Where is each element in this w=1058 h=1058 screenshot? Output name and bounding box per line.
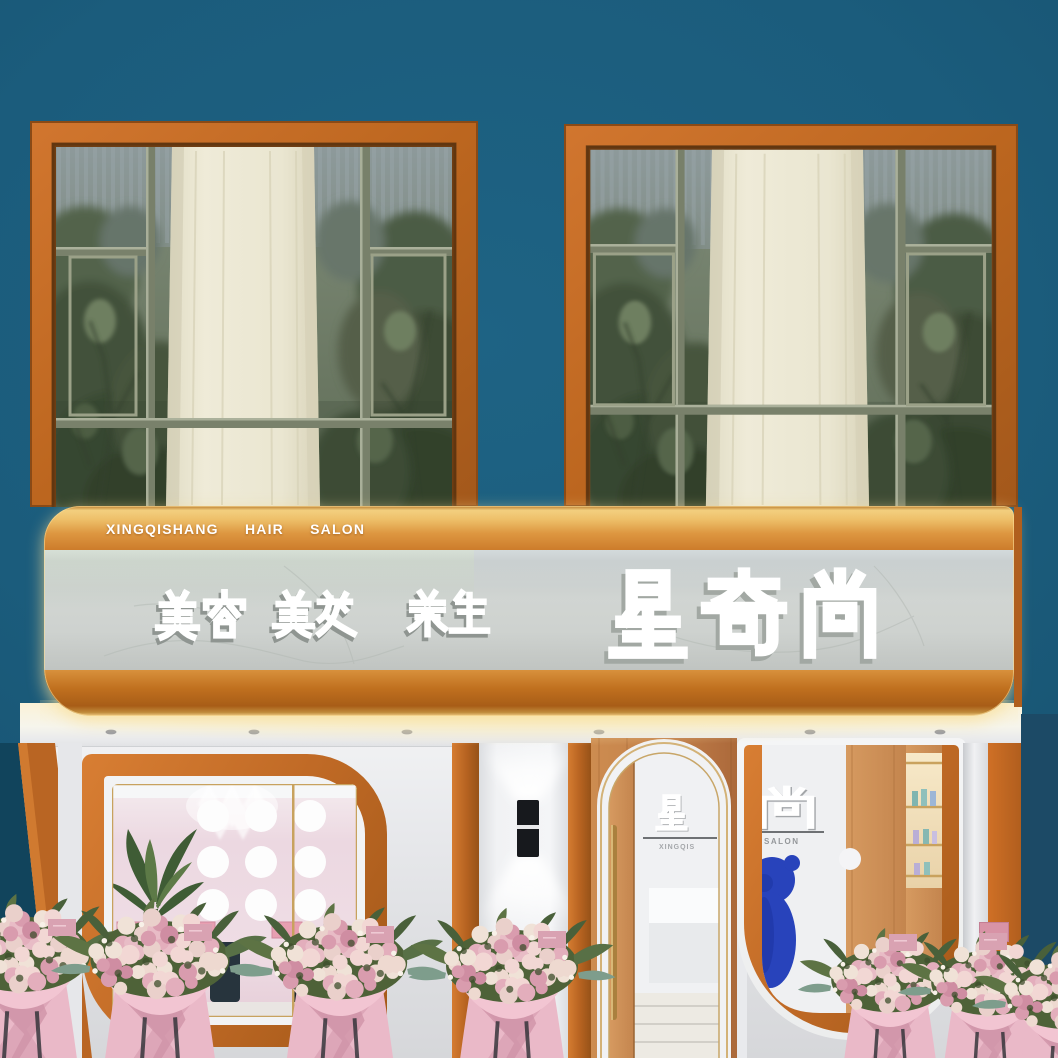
svg-text:SALON: SALON bbox=[764, 837, 800, 846]
svg-text:XINGQIS: XINGQIS bbox=[659, 844, 695, 851]
